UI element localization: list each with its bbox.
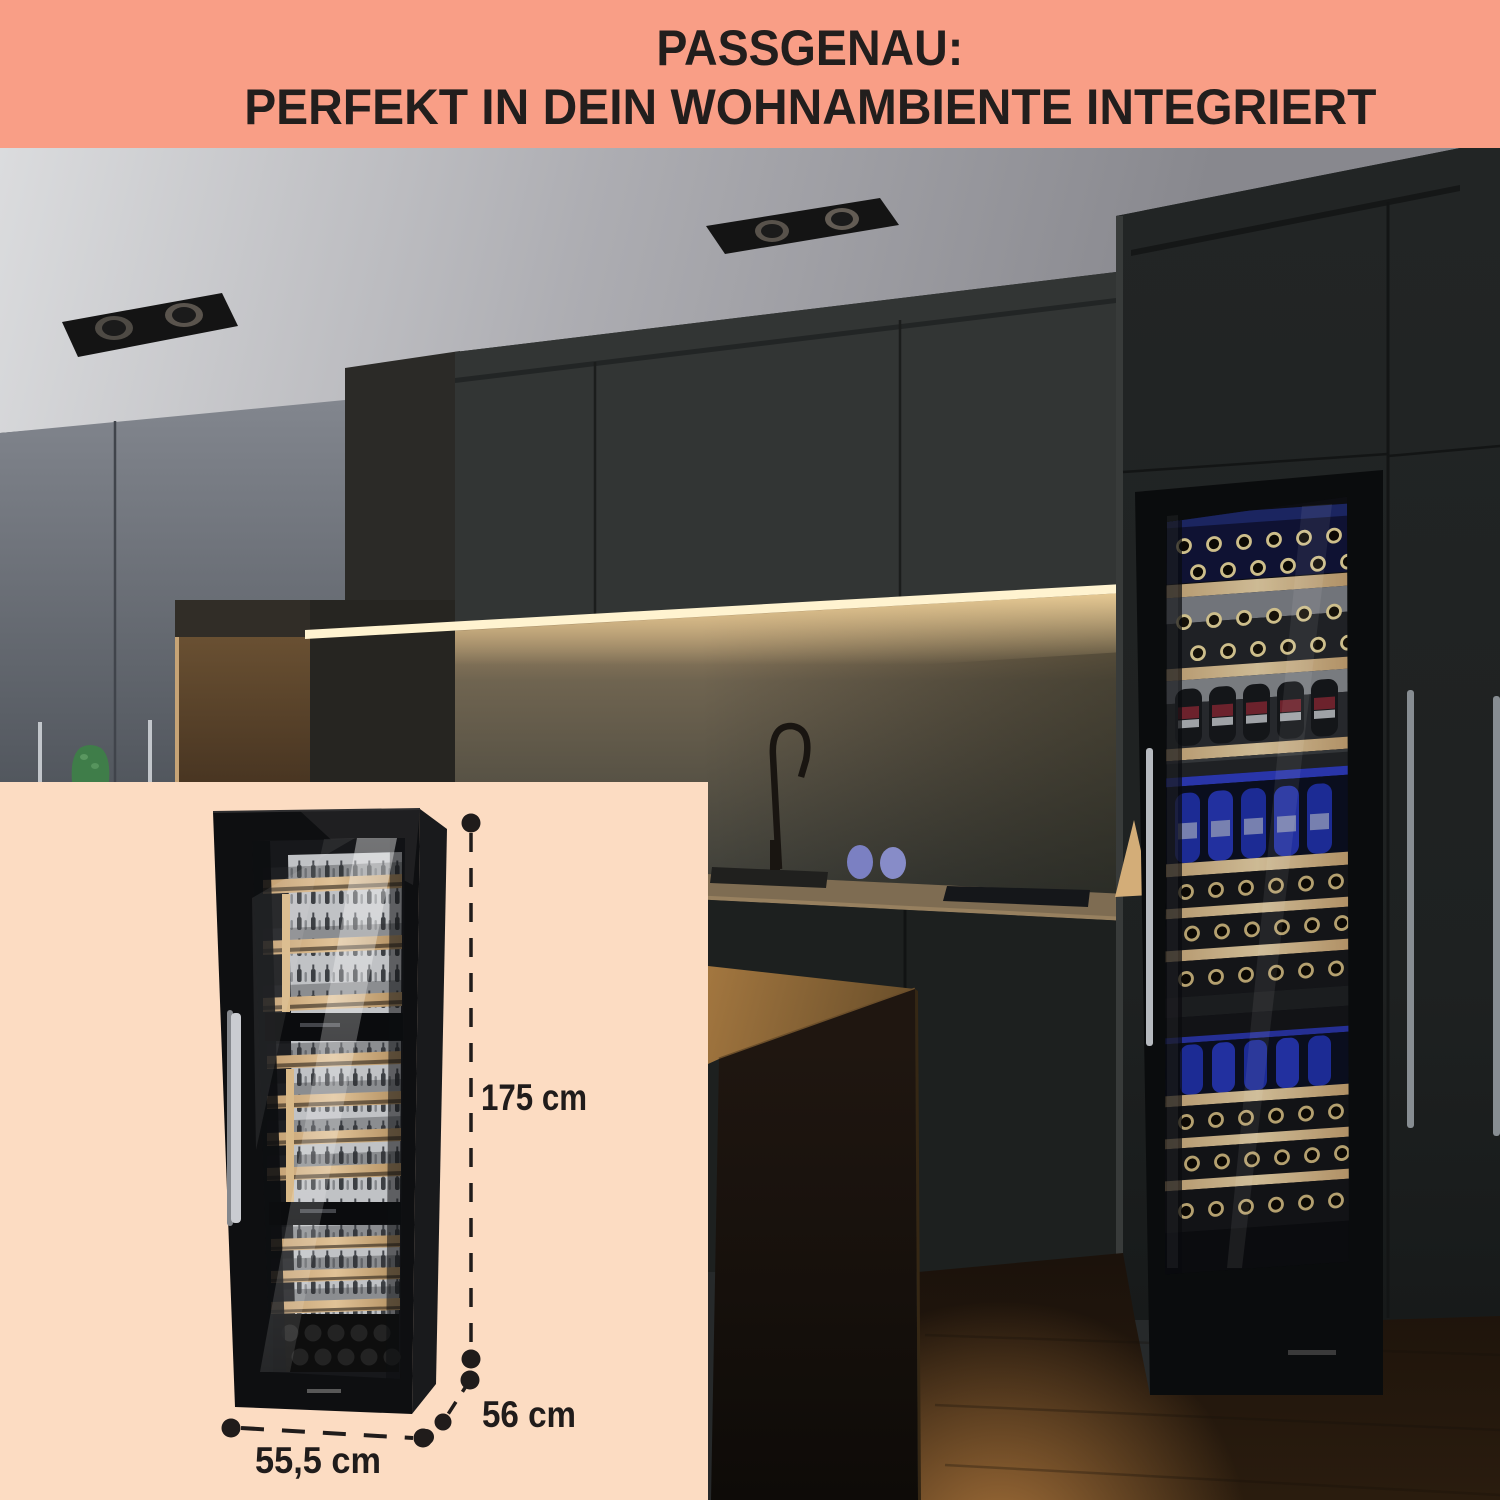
svg-text:56 cm: 56 cm bbox=[482, 1394, 576, 1435]
svg-text:55,5 cm: 55,5 cm bbox=[255, 1440, 381, 1481]
svg-text:175 cm: 175 cm bbox=[481, 1077, 587, 1118]
